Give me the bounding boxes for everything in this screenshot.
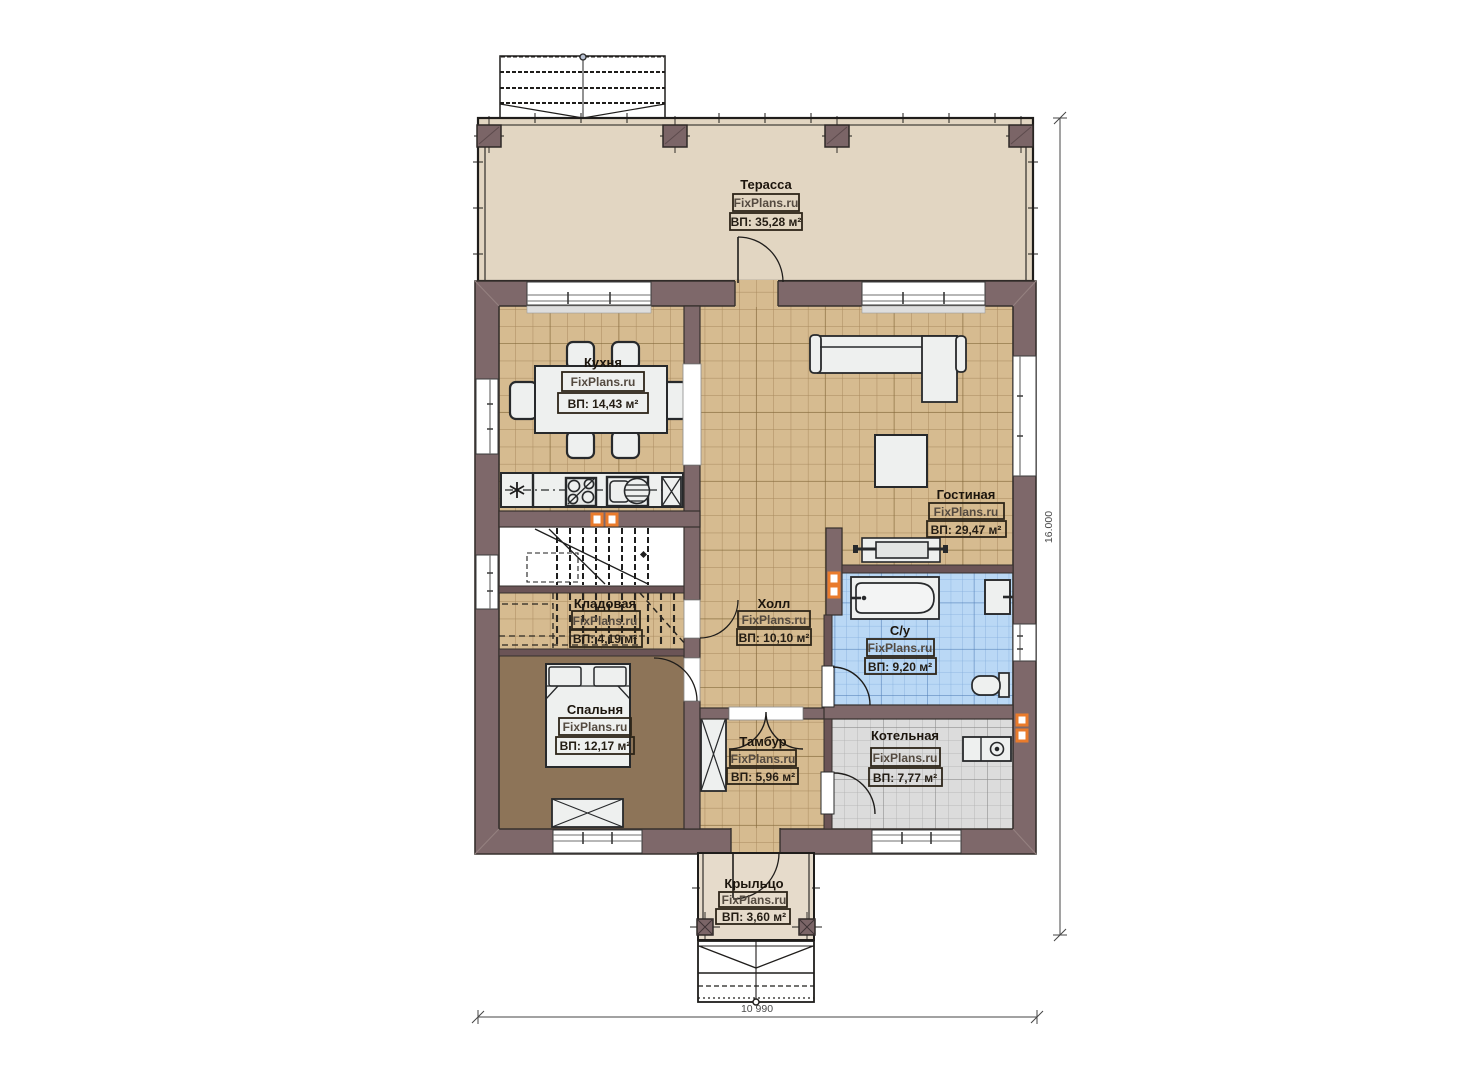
svg-text:Холл: Холл: [758, 596, 791, 611]
svg-text:FixPlans.ru: FixPlans.ru: [731, 752, 796, 766]
svg-text:ВП: 14,43 м²: ВП: 14,43 м²: [568, 397, 639, 411]
svg-text:ВП: 35,28 м²: ВП: 35,28 м²: [731, 215, 802, 229]
svg-text:FixPlans.ru: FixPlans.ru: [573, 614, 638, 628]
svg-text:FixPlans.ru: FixPlans.ru: [873, 751, 938, 765]
svg-text:Котельная: Котельная: [871, 728, 939, 743]
svg-text:Кухня: Кухня: [584, 355, 622, 370]
svg-text:FixPlans.ru: FixPlans.ru: [742, 613, 807, 627]
svg-text:ВП: 7,77 м²: ВП: 7,77 м²: [873, 771, 937, 785]
svg-text:FixPlans.ru: FixPlans.ru: [734, 196, 799, 210]
svg-text:ВП: 3,60 м²: ВП: 3,60 м²: [722, 910, 786, 924]
svg-text:ВП: 5,96 м²: ВП: 5,96 м²: [731, 770, 795, 784]
svg-text:Крыльцо: Крыльцо: [724, 876, 783, 891]
svg-text:С/у: С/у: [890, 623, 911, 638]
svg-text:ВП: 12,17 м²: ВП: 12,17 м²: [560, 739, 631, 753]
svg-text:FixPlans.ru: FixPlans.ru: [868, 641, 933, 655]
svg-text:10 990: 10 990: [741, 1003, 773, 1015]
svg-text:Гостиная: Гостиная: [937, 487, 996, 502]
svg-text:Терасса: Терасса: [740, 177, 792, 192]
svg-text:FixPlans.ru: FixPlans.ru: [722, 893, 787, 907]
svg-text:ВП: 10,10 м²: ВП: 10,10 м²: [739, 631, 810, 645]
svg-text:FixPlans.ru: FixPlans.ru: [563, 720, 628, 734]
svg-text:ВП: 9,20 м²: ВП: 9,20 м²: [868, 660, 932, 674]
svg-text:Кладовая: Кладовая: [574, 596, 636, 611]
svg-text:FixPlans.ru: FixPlans.ru: [571, 375, 636, 389]
svg-text:ВП: 29,47 м²: ВП: 29,47 м²: [931, 523, 1002, 537]
svg-text:FixPlans.ru: FixPlans.ru: [934, 505, 999, 519]
svg-text:Тамбур: Тамбур: [739, 734, 786, 749]
svg-text:ВП: 4,19 м²: ВП: 4,19 м²: [573, 632, 637, 646]
svg-text:Спальня: Спальня: [567, 702, 623, 717]
svg-text:16.000: 16.000: [1043, 511, 1055, 543]
